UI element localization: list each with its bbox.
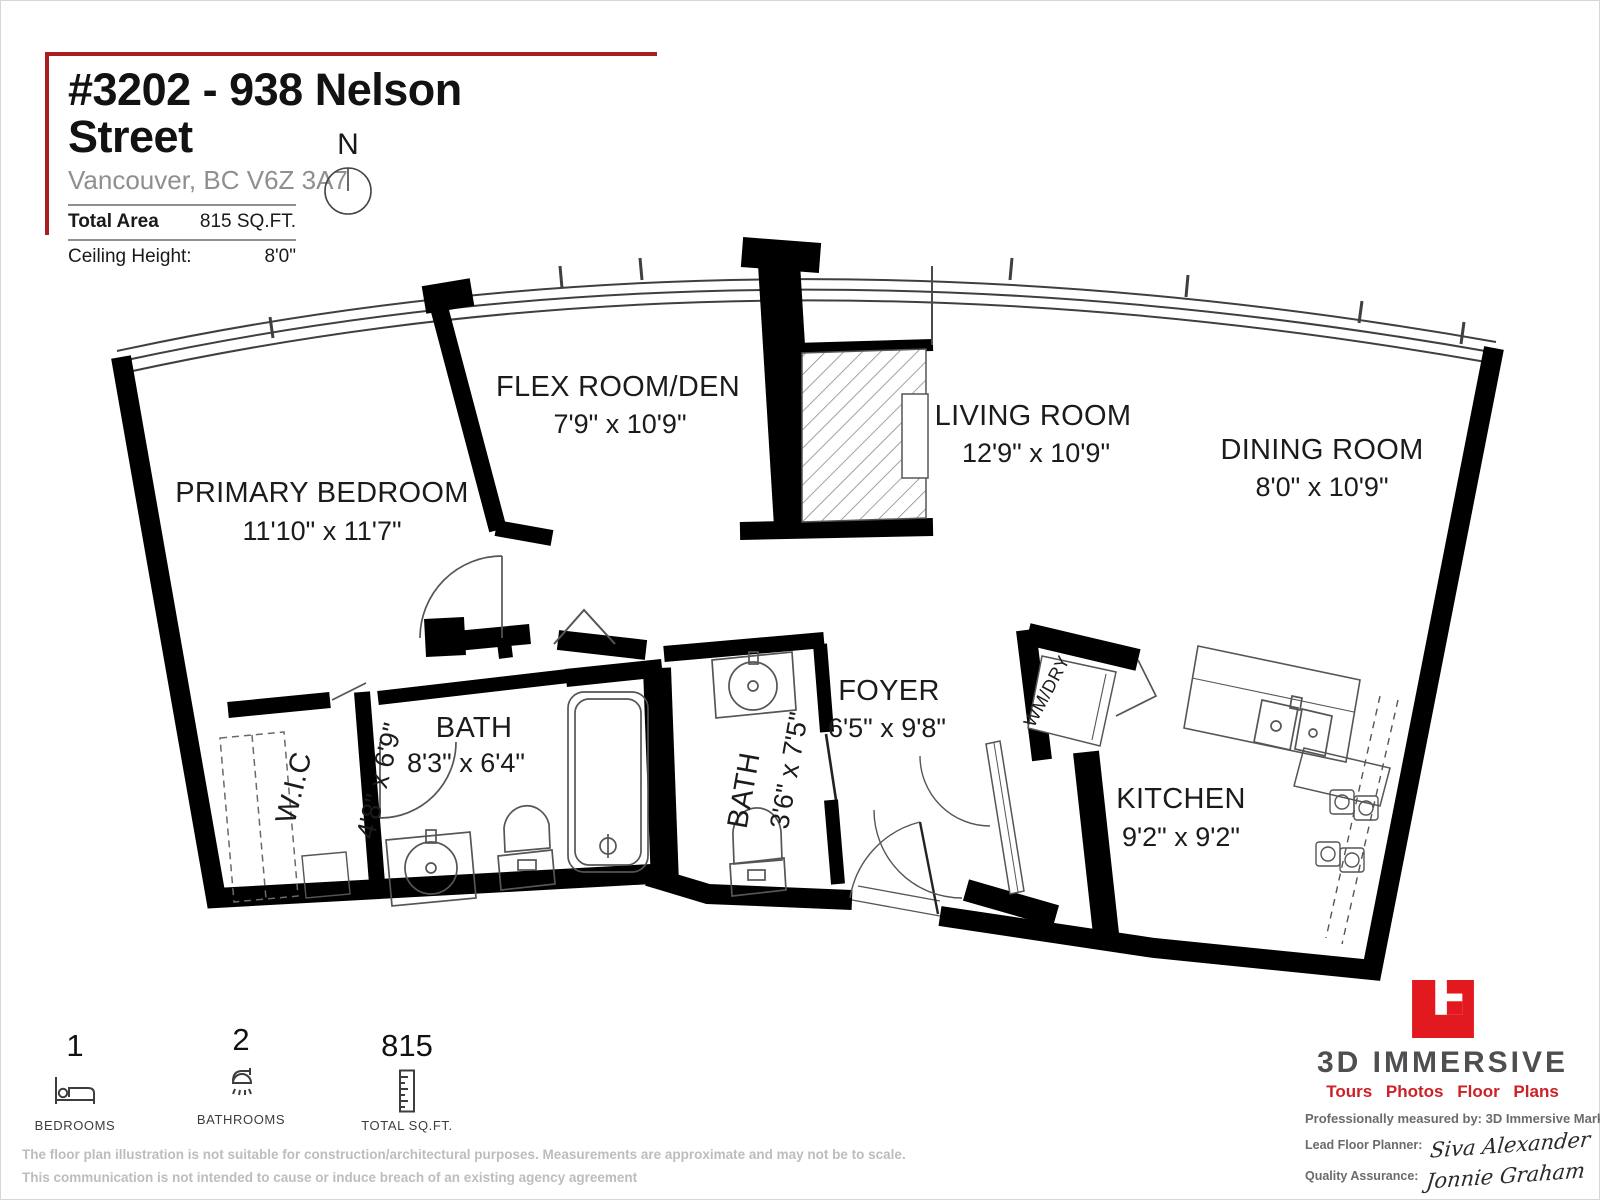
foyer-closet-doors xyxy=(874,741,1024,898)
room-label-living-room: LIVING ROOM 12'9" x 10'9" xyxy=(935,400,1132,468)
qa-row: Quality Assurance: Jonnie Graham xyxy=(1305,1164,1580,1188)
bathrooms-count: 2 xyxy=(186,1022,296,1058)
svg-text:7'9" x 10'9": 7'9" x 10'9" xyxy=(553,409,686,439)
stove-burners xyxy=(1316,790,1378,872)
fireplace-insert xyxy=(902,394,928,478)
svg-text:KITCHEN: KITCHEN xyxy=(1116,783,1245,815)
svg-text:12'9" x 10'9": 12'9" x 10'9" xyxy=(962,438,1110,468)
svg-text:LIVING ROOM: LIVING ROOM xyxy=(935,400,1132,432)
svg-text:6'5" x 9'8": 6'5" x 9'8" xyxy=(828,713,946,743)
svg-text:DINING ROOM: DINING ROOM xyxy=(1220,434,1423,466)
bathrooms-label: BATHROOMS xyxy=(186,1112,296,1127)
room-label-wic: W.I.C 4'8" x 6'9" xyxy=(270,720,408,842)
svg-text:8'0" x 10'9": 8'0" x 10'9" xyxy=(1255,472,1388,502)
svg-text:BATH: BATH xyxy=(722,750,767,831)
toilet-bowl xyxy=(504,806,550,852)
stat-total-sqft: 815 TOTAL SQ.FT. xyxy=(352,1028,462,1133)
floorplan-page: #3202 - 938 Nelson Street Vancouver, BC … xyxy=(0,0,1600,1200)
stat-bedrooms: 1 BEDROOMS xyxy=(20,1028,130,1133)
qa-label: Quality Assurance: xyxy=(1305,1169,1418,1183)
bath-second-door xyxy=(826,734,836,800)
brand-block: 3D IMMERSIVE Tours Photos Floor Plans Pr… xyxy=(1305,980,1580,1188)
svg-text:9'2" x 9'2": 9'2" x 9'2" xyxy=(1122,822,1240,852)
bedrooms-count: 1 xyxy=(20,1028,130,1064)
room-label-primary-bedroom: PRIMARY BEDROOM 11'10" x 11'7" xyxy=(175,477,468,546)
svg-text:FLEX ROOM/DEN: FLEX ROOM/DEN xyxy=(496,371,740,403)
ruler-icon xyxy=(352,1070,462,1112)
bed-icon xyxy=(20,1070,130,1112)
disclaimer-line1: The floor plan illustration is not suita… xyxy=(22,1143,906,1166)
stat-bathrooms: 2 BATHROOMS xyxy=(186,1028,296,1133)
measured-by: Professionally measured by: 3D Immersive… xyxy=(1305,1111,1580,1126)
disclaimer-line2: This communication is not intended to ca… xyxy=(22,1166,906,1189)
room-label-bath-second: BATH 3'6" x 7'5" xyxy=(722,710,814,831)
lead-planner-signature: Siva Alexander xyxy=(1429,1127,1591,1162)
shower-icon xyxy=(186,1064,296,1106)
svg-text:8'3" x 6'4": 8'3" x 6'4" xyxy=(407,748,525,778)
svg-text:BATH: BATH xyxy=(436,712,512,744)
total-sqft-count: 815 xyxy=(352,1028,462,1064)
summary-stats: 1 BEDROOMS 2 xyxy=(20,1028,462,1133)
structural-shaft xyxy=(802,266,932,522)
disclaimer: The floor plan illustration is not suita… xyxy=(22,1143,906,1189)
room-label-bath-main: BATH 8'3" x 6'4" xyxy=(407,712,525,778)
lead-planner-label: Lead Floor Planner: xyxy=(1305,1138,1422,1152)
svg-text:FOYER: FOYER xyxy=(838,675,939,707)
room-label-dining-room: DINING ROOM 8'0" x 10'9" xyxy=(1220,434,1423,502)
room-label-flex-room: FLEX ROOM/DEN 7'9" x 10'9" xyxy=(496,371,740,439)
bedrooms-label: BEDROOMS xyxy=(20,1118,130,1133)
brand-logo-icon xyxy=(1412,980,1474,1038)
svg-text:3'6" x 7'5": 3'6" x 7'5" xyxy=(764,710,814,831)
lead-planner-row: Lead Floor Planner: Siva Alexander xyxy=(1305,1133,1580,1157)
svg-text:11'10" x 11'7": 11'10" x 11'7" xyxy=(242,516,401,546)
brand-name: 3D IMMERSIVE xyxy=(1305,1046,1580,1080)
svg-text:W.I.C: W.I.C xyxy=(270,749,319,827)
total-sqft-label: TOTAL SQ.FT. xyxy=(352,1118,462,1133)
svg-text:PRIMARY BEDROOM: PRIMARY BEDROOM xyxy=(175,477,468,509)
room-label-foyer: FOYER 6'5" x 9'8" xyxy=(828,675,946,743)
entry-door xyxy=(850,822,940,916)
brand-tagline: Tours Photos Floor Plans xyxy=(1305,1082,1580,1102)
room-label-kitchen: KITCHEN 9'2" x 9'2" xyxy=(1116,783,1245,852)
